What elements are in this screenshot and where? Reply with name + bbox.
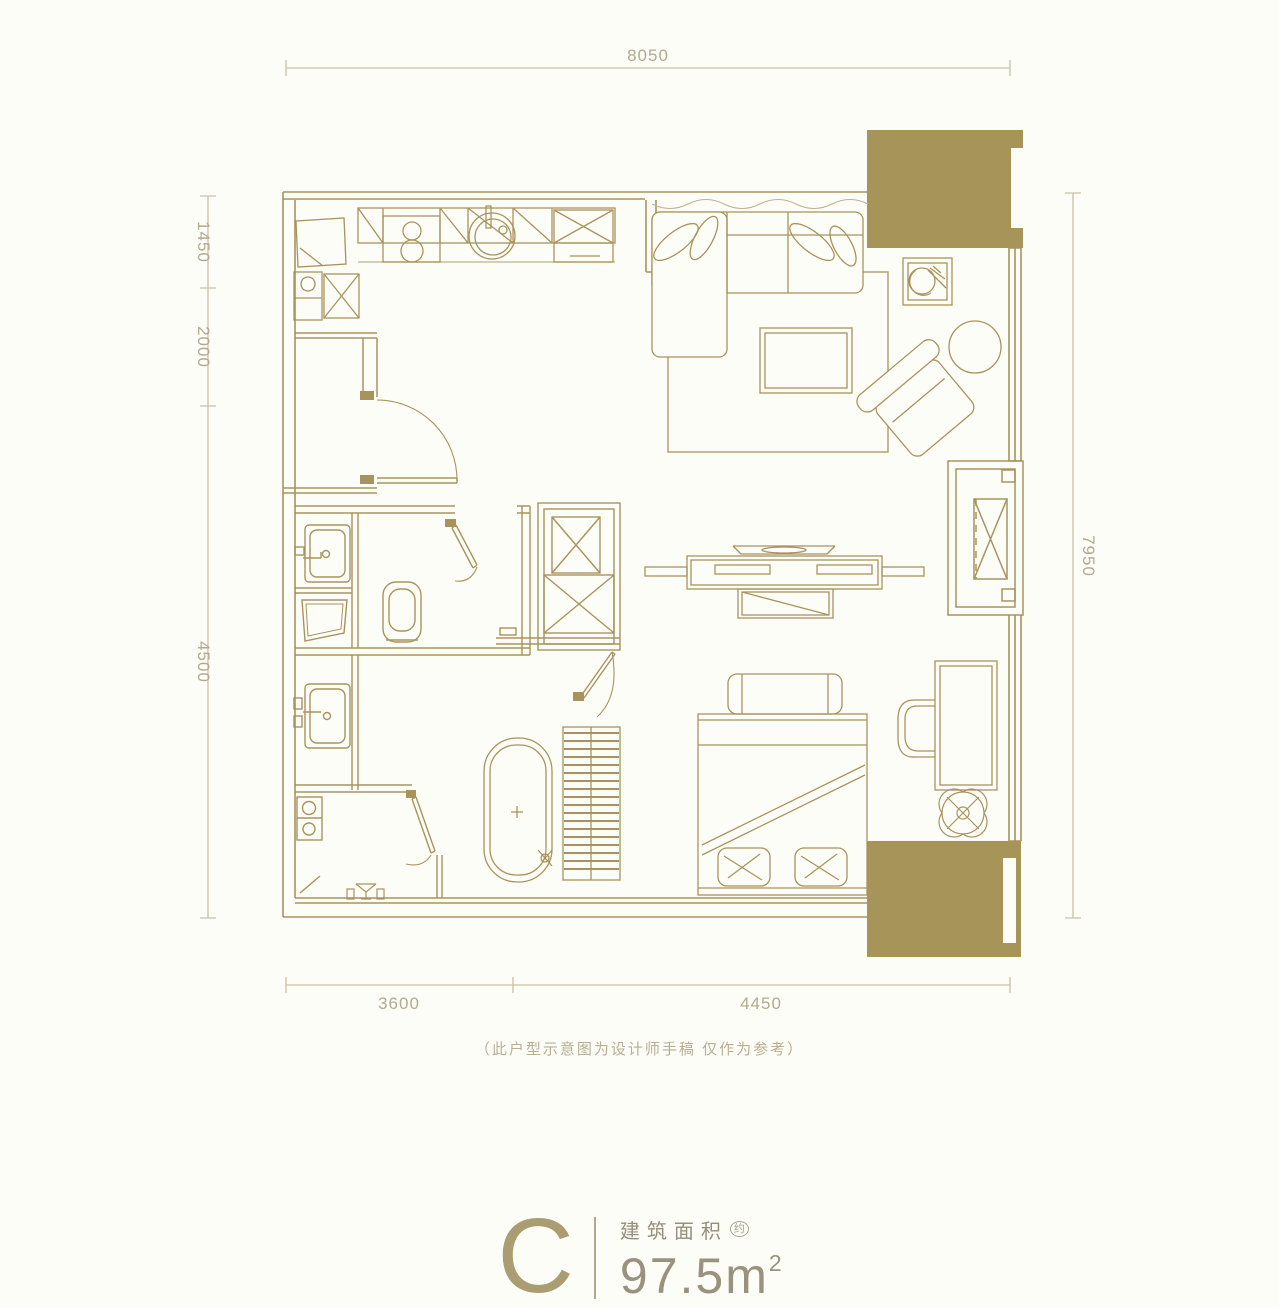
area-qualifier: 约 xyxy=(730,1221,749,1237)
kitchen-cabinet xyxy=(554,210,613,262)
second-washbasin xyxy=(294,684,350,748)
desk xyxy=(935,661,997,790)
dimension-label-right: 7950 xyxy=(1079,535,1098,577)
entry-hall xyxy=(283,333,457,493)
bedroom-door xyxy=(573,652,615,717)
area-value-row: 97.5m2 xyxy=(620,1251,782,1301)
dining-bench xyxy=(882,567,924,576)
unit-summary: C 建筑面积约 97.5m2 xyxy=(0,1212,1279,1301)
door-hinge xyxy=(360,475,374,484)
armchair xyxy=(853,336,985,466)
bed-cushion xyxy=(795,848,847,886)
dining-bench xyxy=(645,567,687,576)
area-label: 建筑面积 xyxy=(620,1221,728,1243)
dimension-bottom: 3600 4450 xyxy=(286,977,1010,1013)
kitchen xyxy=(294,206,615,320)
hall-closet xyxy=(496,503,620,650)
dimension-top: 8050 xyxy=(286,46,1010,76)
dimension-left: 1450 2000 4500 xyxy=(194,196,216,918)
entry-door xyxy=(377,400,457,483)
dining-area xyxy=(645,546,924,618)
washbasin xyxy=(295,525,350,582)
disclaimer-note: （此户型示意图为设计师手稿 仅作为参考） xyxy=(0,1038,1279,1059)
area-value: 97.5m xyxy=(620,1248,769,1304)
washing-machine xyxy=(297,797,322,840)
bathroom-door xyxy=(445,519,477,581)
bathtub xyxy=(484,738,552,882)
bed-pillow xyxy=(728,674,842,714)
potted-plant xyxy=(903,258,952,305)
balcony-block-bottom xyxy=(867,841,1021,957)
floor-drain xyxy=(347,884,384,899)
laundry-room xyxy=(295,785,442,899)
ceiling-fan-symbol xyxy=(939,789,987,837)
floor-plan-page: 8050 1450 2000 4500 7950 3600 4450 xyxy=(0,0,1279,1308)
dimension-label-top: 8050 xyxy=(627,46,669,65)
unit-letter: C xyxy=(497,1212,574,1301)
bed-cushion xyxy=(718,848,770,886)
area-label-row: 建筑面积约 xyxy=(620,1215,782,1244)
wardrobe xyxy=(563,727,620,880)
dimension-label-left-3: 4500 xyxy=(194,641,213,683)
kitchen-base-unit xyxy=(294,272,359,320)
bed xyxy=(698,674,867,895)
dining-table xyxy=(645,556,924,589)
area-superscript: 2 xyxy=(769,1250,782,1276)
balcony-block-top xyxy=(867,130,1023,248)
door-hinge xyxy=(360,391,374,400)
dimension-label-bottom-2: 4450 xyxy=(740,994,782,1013)
desk-chair xyxy=(898,700,935,757)
floor-plan-canvas: 8050 1450 2000 4500 7950 3600 4450 xyxy=(0,0,1279,1308)
dimension-right: 7950 xyxy=(1065,193,1098,918)
curtain xyxy=(652,200,868,209)
refrigerator xyxy=(296,218,346,267)
sofa xyxy=(649,212,863,357)
pendant-lamp xyxy=(733,546,835,554)
bathroom xyxy=(295,506,530,655)
powder-area xyxy=(294,655,358,790)
footer-divider xyxy=(594,1217,596,1299)
side-table xyxy=(949,321,1001,373)
sideboard xyxy=(738,589,833,618)
coffee-table xyxy=(760,328,852,393)
dimension-label-bottom-1: 3600 xyxy=(378,994,420,1013)
dimension-label-left-1: 1450 xyxy=(194,221,213,263)
shower-tray xyxy=(302,600,347,641)
toilet xyxy=(383,582,421,642)
laundry-door xyxy=(406,790,435,865)
dimension-label-left-2: 2000 xyxy=(194,326,213,368)
gas-stove xyxy=(383,216,440,262)
area-block: 建筑面积约 97.5m2 xyxy=(620,1215,782,1301)
bay-window xyxy=(948,461,1023,615)
